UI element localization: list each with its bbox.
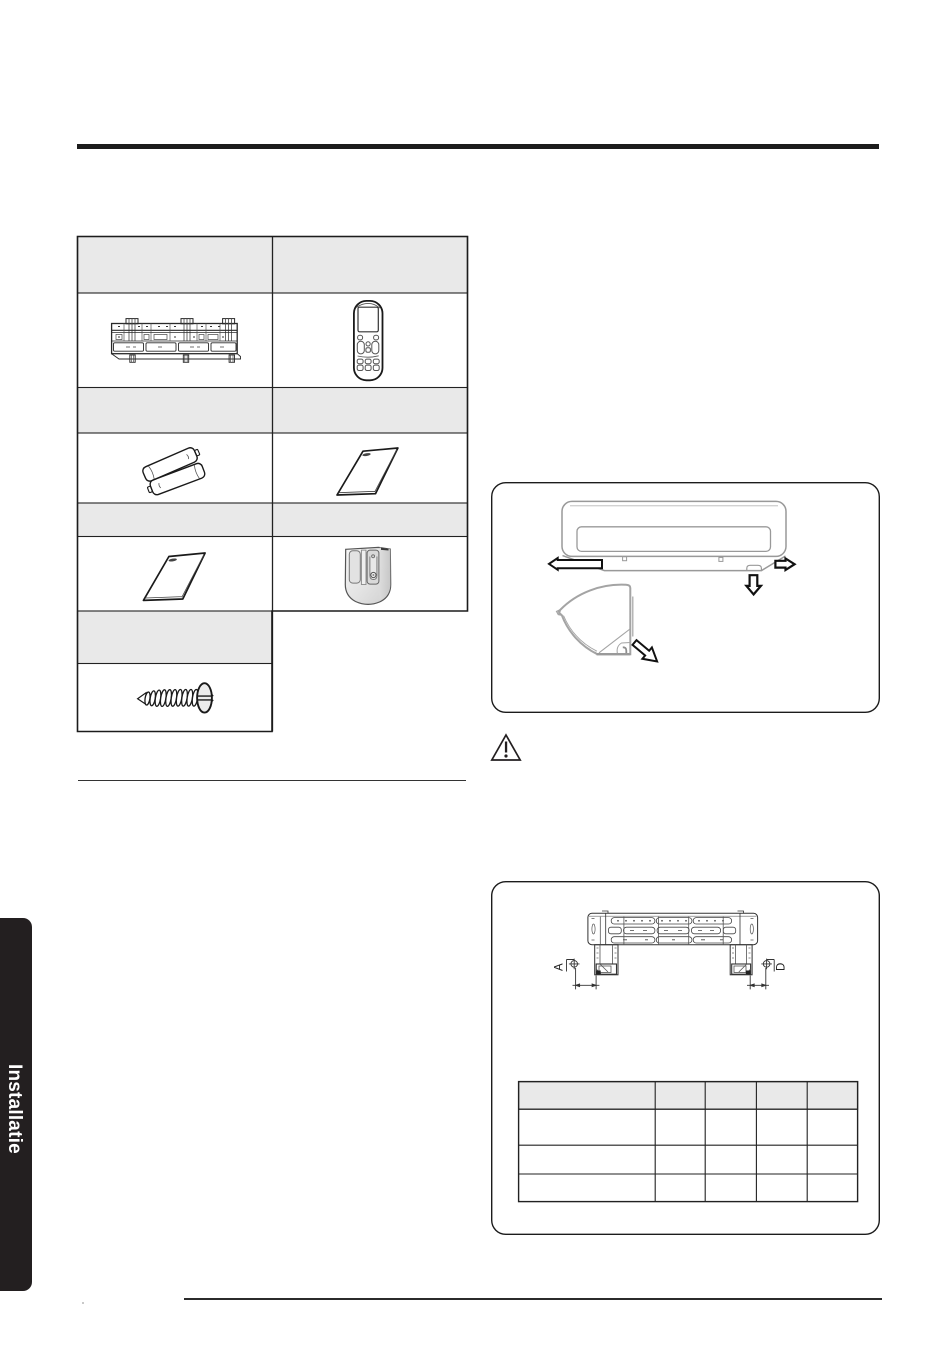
svg-text:A: A: [554, 963, 566, 971]
svg-text:D: D: [776, 963, 788, 971]
